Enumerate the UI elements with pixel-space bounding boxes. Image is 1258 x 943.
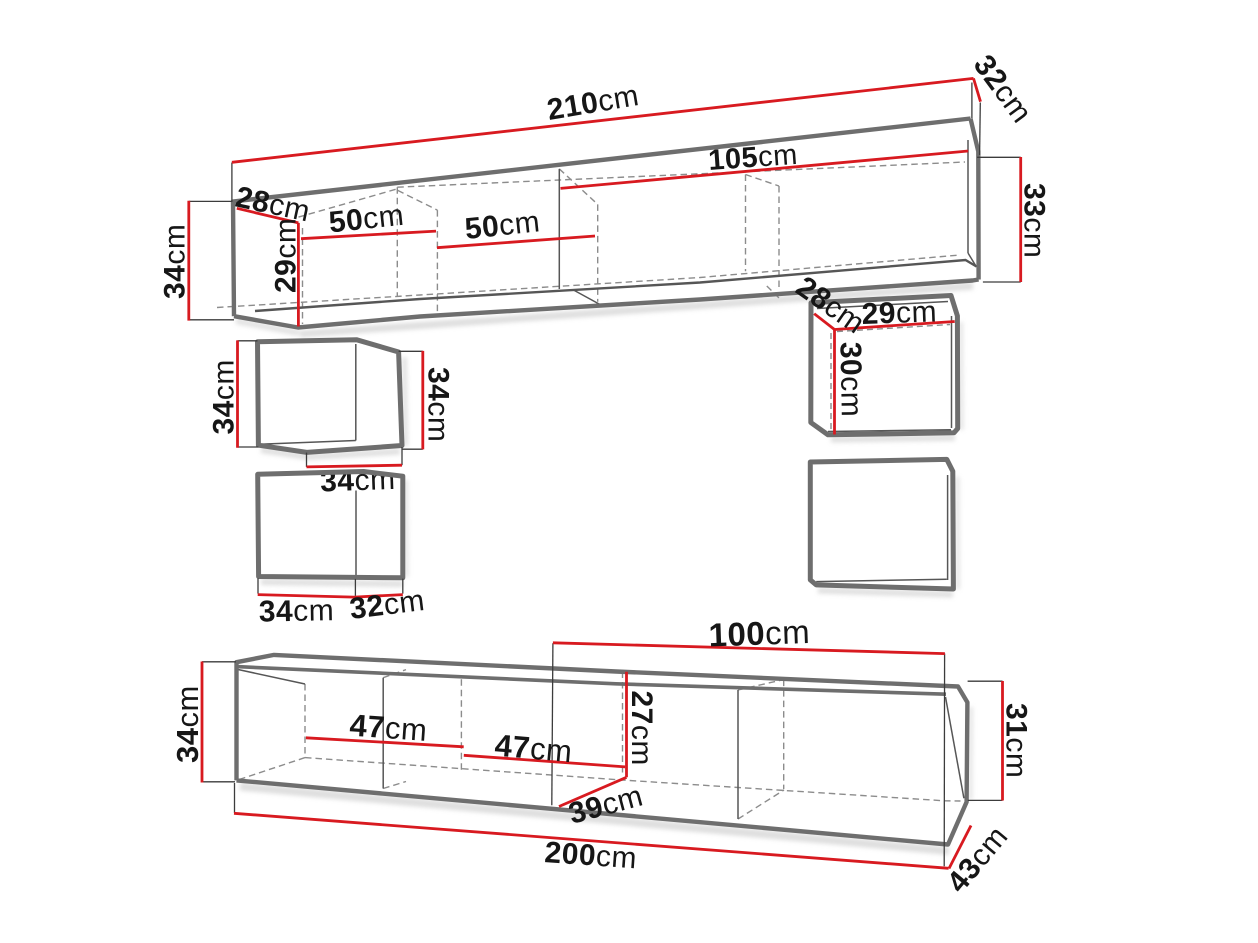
svg-text:47cm: 47cm bbox=[349, 708, 429, 748]
svg-text:30cm: 30cm bbox=[834, 342, 868, 418]
svg-text:27cm: 27cm bbox=[625, 691, 658, 766]
svg-text:34cm: 34cm bbox=[422, 367, 455, 442]
svg-text:200cm: 200cm bbox=[544, 836, 639, 875]
svg-text:34cm: 34cm bbox=[320, 463, 396, 499]
svg-text:29cm: 29cm bbox=[270, 218, 303, 293]
svg-text:34cm: 34cm bbox=[208, 359, 241, 434]
svg-text:47cm: 47cm bbox=[493, 728, 574, 770]
svg-text:29cm: 29cm bbox=[861, 295, 937, 331]
svg-text:34cm: 34cm bbox=[259, 594, 335, 628]
svg-text:210cm: 210cm bbox=[545, 79, 642, 127]
svg-text:34cm: 34cm bbox=[170, 685, 205, 763]
svg-text:100cm: 100cm bbox=[708, 613, 811, 654]
svg-text:32cm: 32cm bbox=[348, 584, 427, 626]
svg-text:28cm: 28cm bbox=[790, 270, 871, 340]
svg-text:33cm: 33cm bbox=[1018, 183, 1051, 258]
svg-text:105cm: 105cm bbox=[707, 139, 799, 177]
svg-text:34cm: 34cm bbox=[159, 224, 192, 299]
svg-text:31cm: 31cm bbox=[1000, 703, 1033, 778]
